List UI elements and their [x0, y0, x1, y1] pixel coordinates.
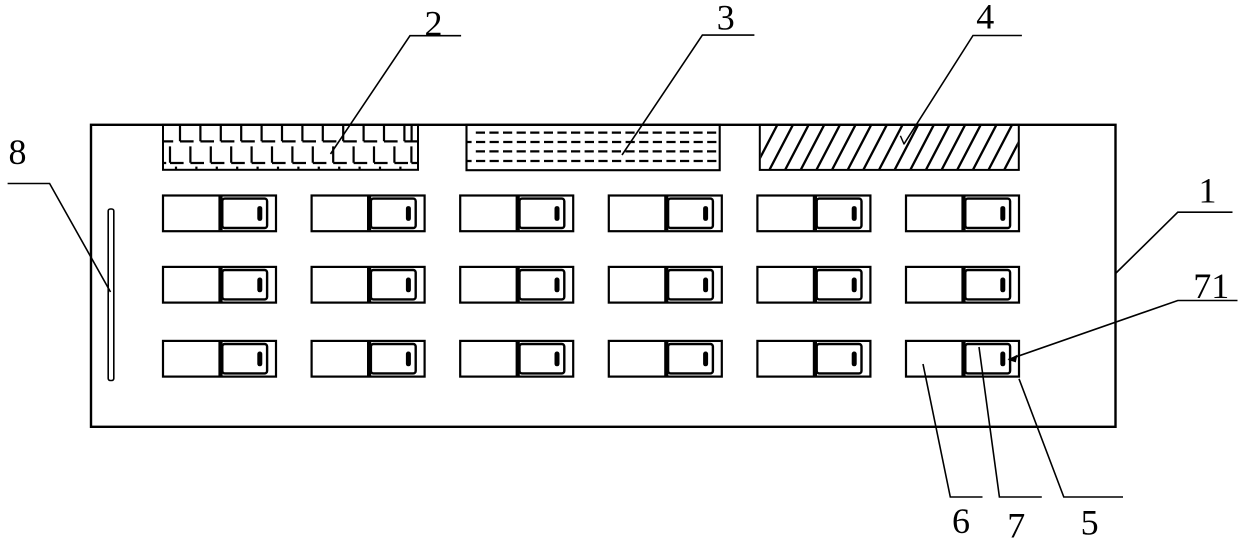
svg-text:3: 3	[717, 0, 735, 38]
svg-text:8: 8	[9, 132, 27, 172]
svg-text:2: 2	[425, 3, 443, 43]
svg-text:4: 4	[976, 0, 994, 37]
svg-text:5: 5	[1081, 503, 1099, 543]
svg-text:1: 1	[1199, 171, 1217, 211]
svg-text:7: 7	[1007, 506, 1025, 545]
svg-text:6: 6	[952, 501, 970, 541]
svg-text:71: 71	[1193, 266, 1229, 306]
